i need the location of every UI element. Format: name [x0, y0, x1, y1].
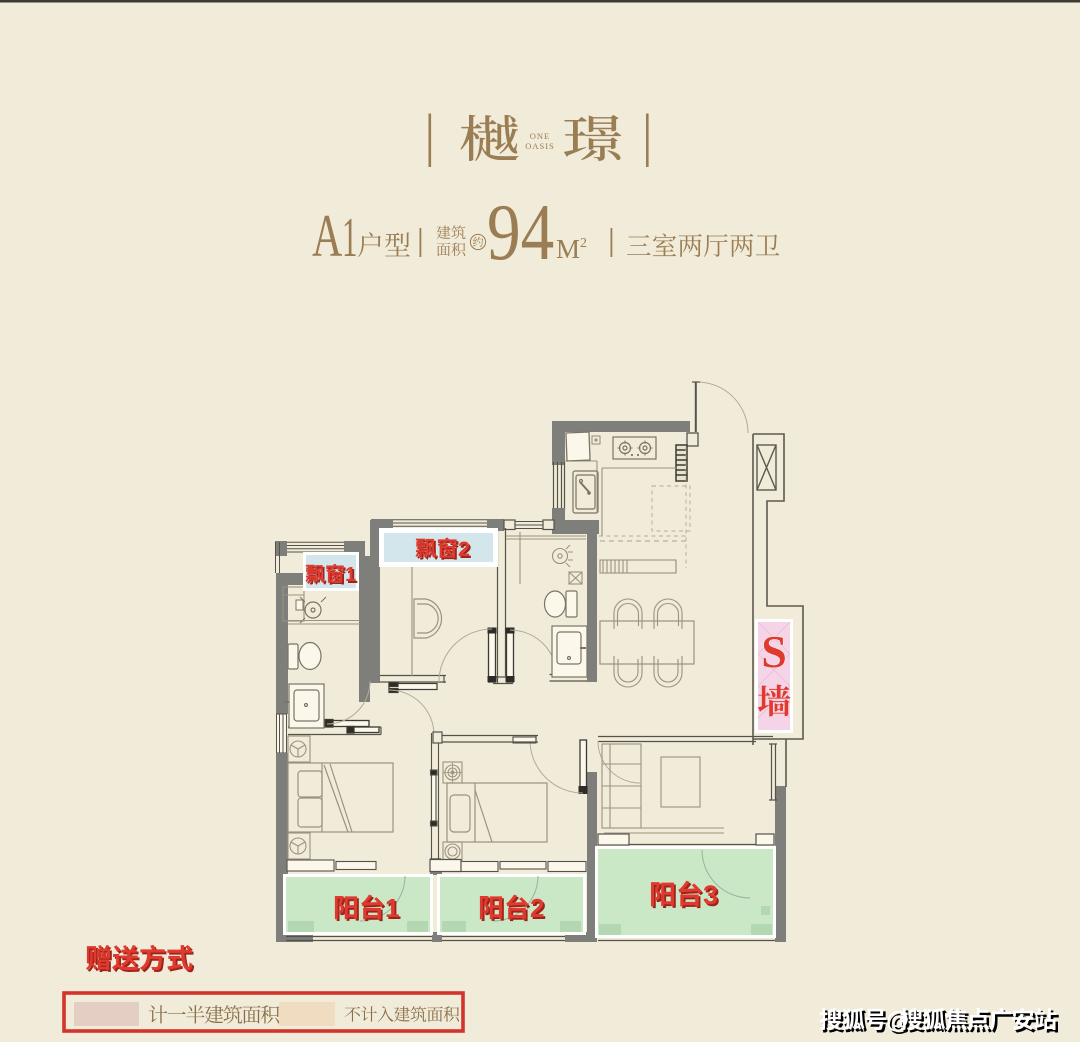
svg-text:2: 2 [458, 537, 470, 561]
svg-text:94: 94 [487, 188, 554, 277]
svg-text:OASIS: OASIS [525, 141, 555, 151]
svg-text:ONE: ONE [530, 131, 550, 141]
svg-text:2: 2 [530, 893, 544, 923]
svg-text:1: 1 [345, 564, 356, 586]
svg-text:3: 3 [703, 880, 718, 910]
svg-text:S: S [761, 626, 787, 677]
svg-text:M: M [556, 234, 580, 264]
svg-text:2: 2 [580, 236, 587, 251]
svg-text:1: 1 [385, 893, 399, 923]
svg-text:A: A [312, 204, 342, 270]
svg-text:1: 1 [342, 206, 357, 268]
